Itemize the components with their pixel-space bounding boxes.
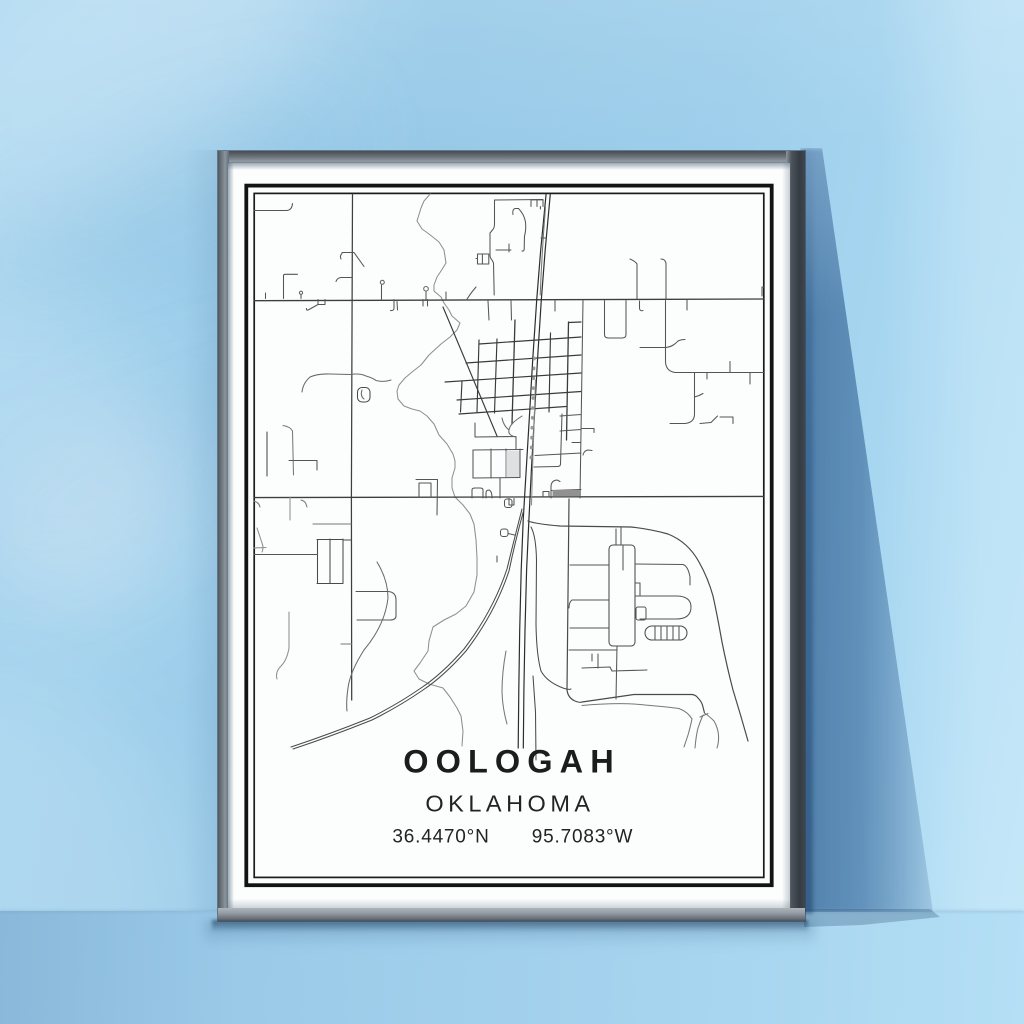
svg-text:OOLOGAH: OOLOGAH xyxy=(403,744,621,780)
svg-text:95.7083°W: 95.7083°W xyxy=(532,827,633,848)
svg-text:OKLAHOMA: OKLAHOMA xyxy=(425,791,594,817)
svg-text:36.4470°N: 36.4470°N xyxy=(392,827,489,848)
